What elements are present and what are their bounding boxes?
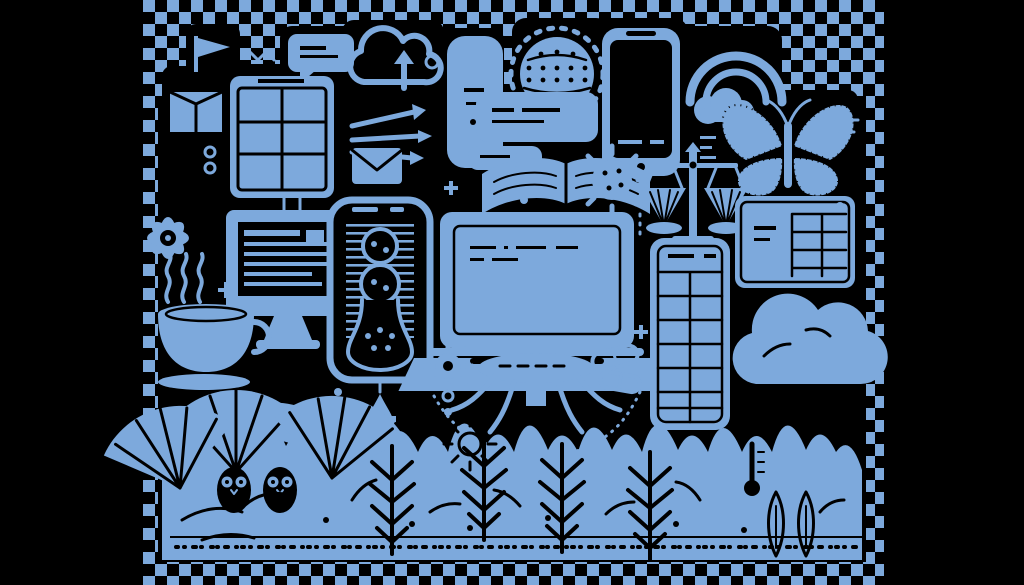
transparent-image-canvas (0, 0, 1024, 585)
tablet-grid-icon (230, 76, 334, 210)
grid-tower-icon (650, 238, 730, 430)
card-table-icon (735, 196, 855, 288)
package-box-icon (170, 92, 222, 132)
envelope-icon (352, 148, 402, 184)
doodle-collage-artwork (0, 0, 1024, 585)
flower-icon (147, 217, 189, 259)
virus-icon (578, 146, 646, 214)
